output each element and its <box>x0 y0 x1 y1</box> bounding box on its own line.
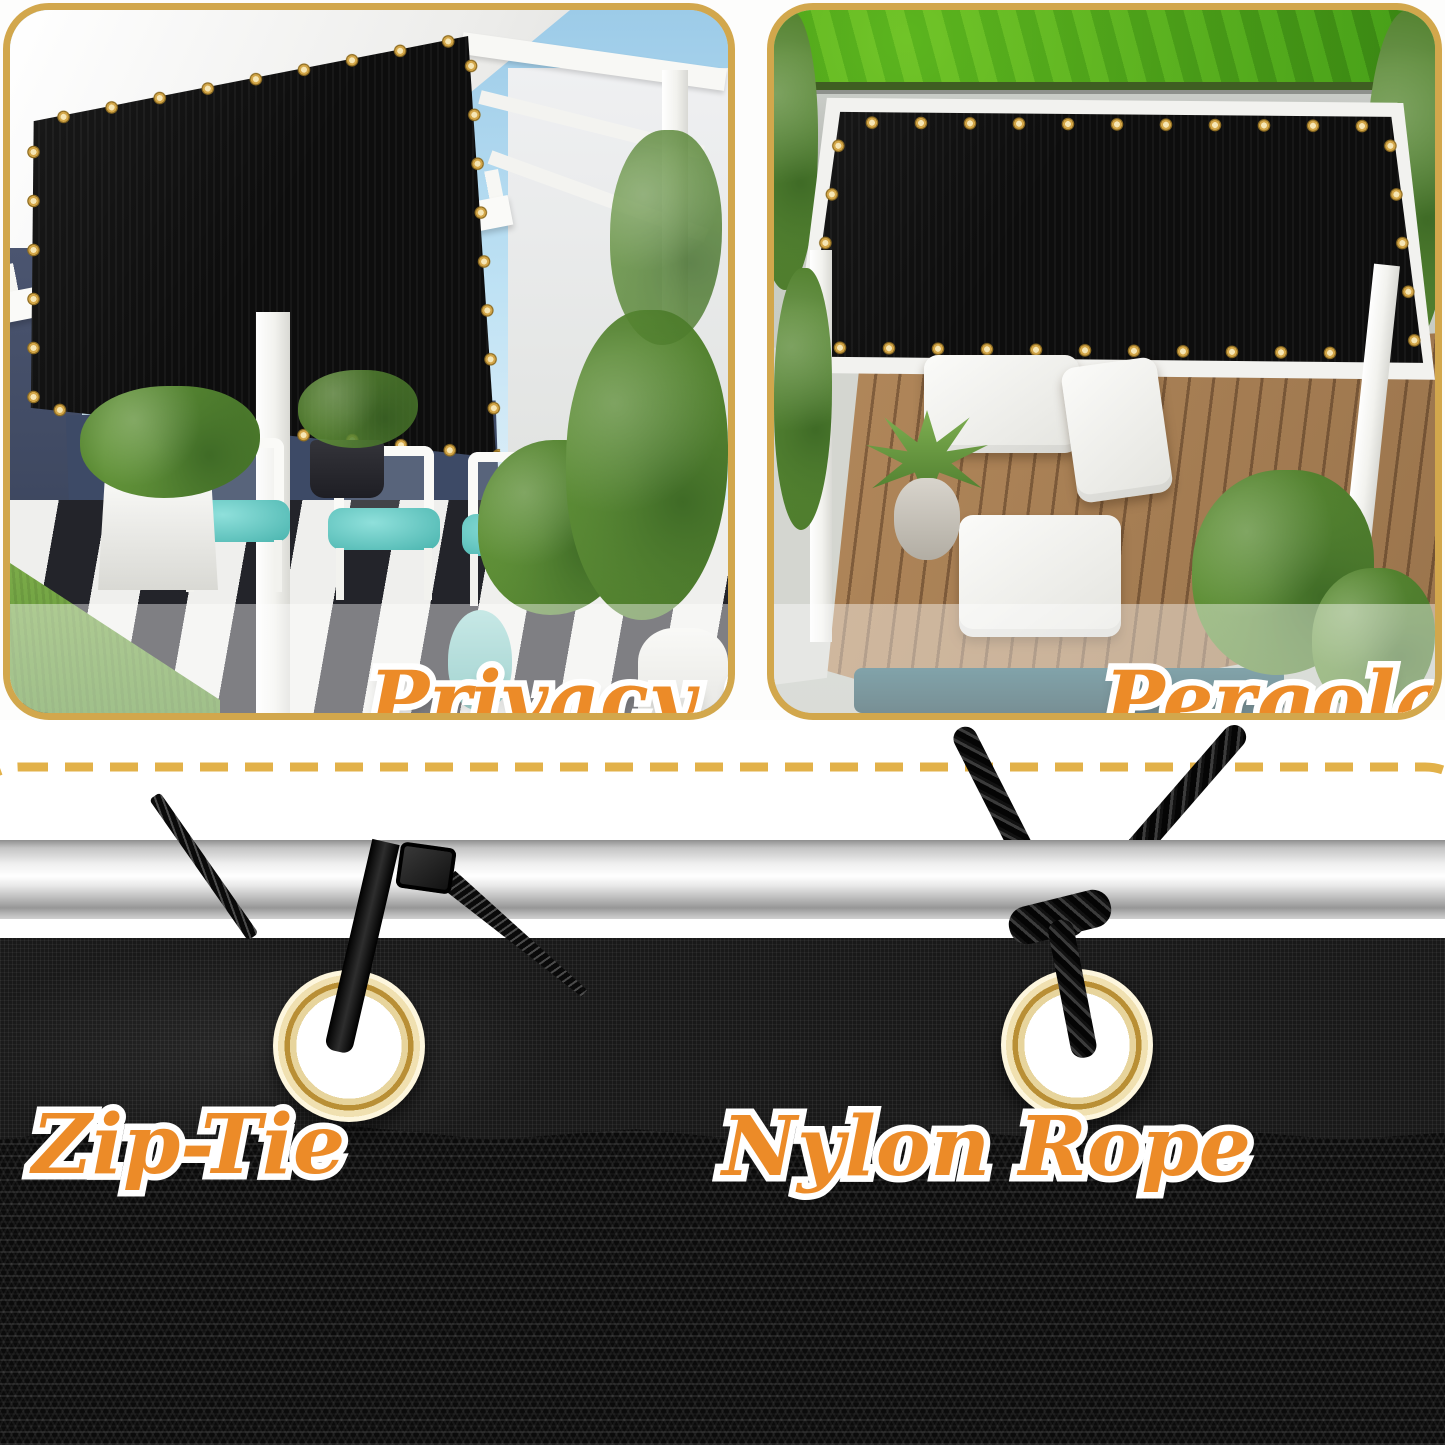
agave-pot <box>894 478 960 560</box>
armchair <box>1060 356 1174 504</box>
privacy-screen-panel: Privacy Screen Privacy Screen <box>3 3 735 720</box>
pergola-cover-label-band: Pergola Cover Pergola Cover <box>774 604 1435 716</box>
hedge-top <box>774 10 1435 90</box>
privacy-screen-label-band: Privacy Screen Privacy Screen <box>10 604 728 716</box>
zip-tie-head <box>395 841 457 894</box>
plant-stand-pot <box>310 440 384 498</box>
installation-demo-section: Zip-Tie Zip-Tie Nylon Rope Nylon Rope <box>0 720 1445 1445</box>
pergola-cover-panel: Pergola Cover Pergola Cover <box>767 3 1442 720</box>
chair-legs <box>336 548 432 600</box>
chair-cushion <box>328 508 440 550</box>
product-image: Privacy Screen Privacy Screen <box>0 0 1445 1445</box>
grommet-row-left <box>26 128 41 404</box>
